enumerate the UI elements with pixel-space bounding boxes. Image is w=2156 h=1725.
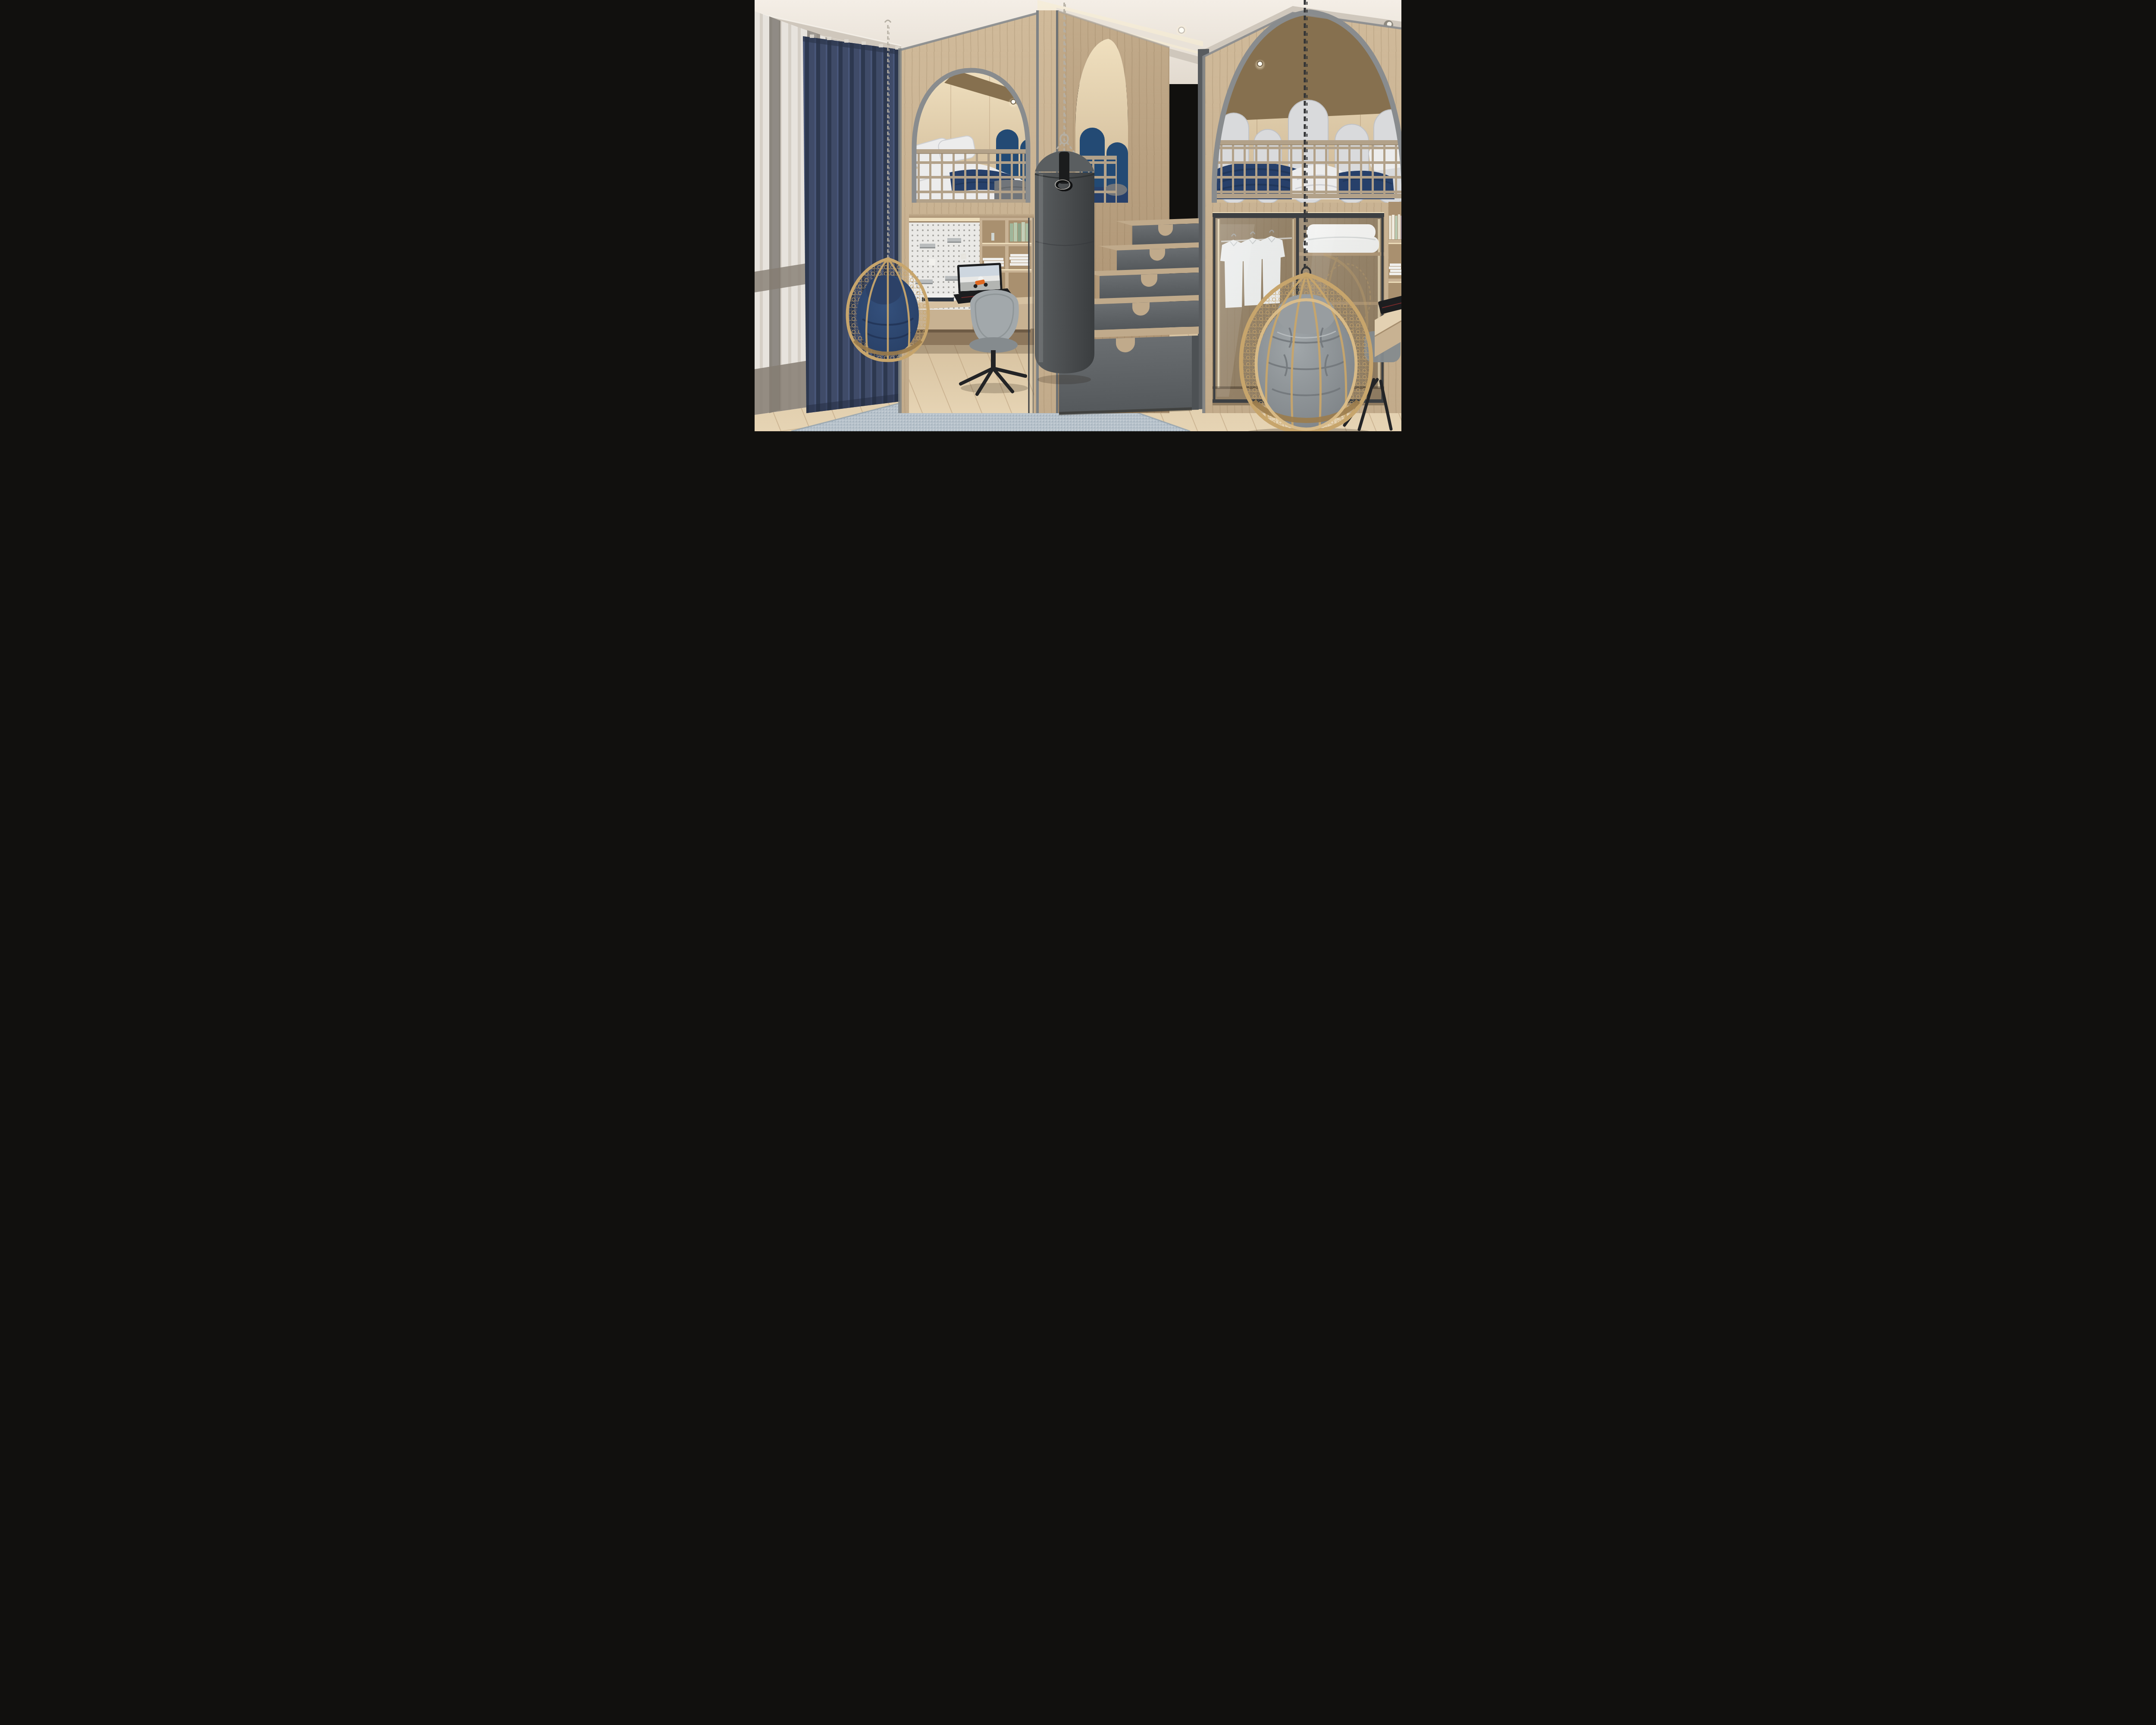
left-loft bbox=[898, 13, 1039, 413]
sheer-dark-stripe bbox=[769, 16, 780, 413]
alcove-spotlight bbox=[1011, 100, 1016, 104]
soffit-spotlight bbox=[1257, 61, 1263, 66]
recessed-spotlight-center bbox=[1178, 27, 1185, 33]
book-spines bbox=[1389, 214, 1401, 239]
pegboard-card bbox=[961, 253, 967, 259]
bedroom-render bbox=[755, 0, 1401, 431]
bookshelf-right bbox=[1388, 202, 1401, 307]
bag-body bbox=[1035, 172, 1094, 373]
loft-fascia bbox=[909, 214, 1034, 218]
green-books bbox=[1010, 222, 1029, 241]
nook-glass-partition bbox=[1028, 218, 1034, 413]
small-bottle bbox=[991, 233, 994, 241]
left-railing bbox=[909, 149, 1035, 204]
pegboard-card bbox=[928, 258, 935, 265]
scene-canvas bbox=[755, 0, 1401, 431]
bag-strap bbox=[1059, 152, 1069, 184]
